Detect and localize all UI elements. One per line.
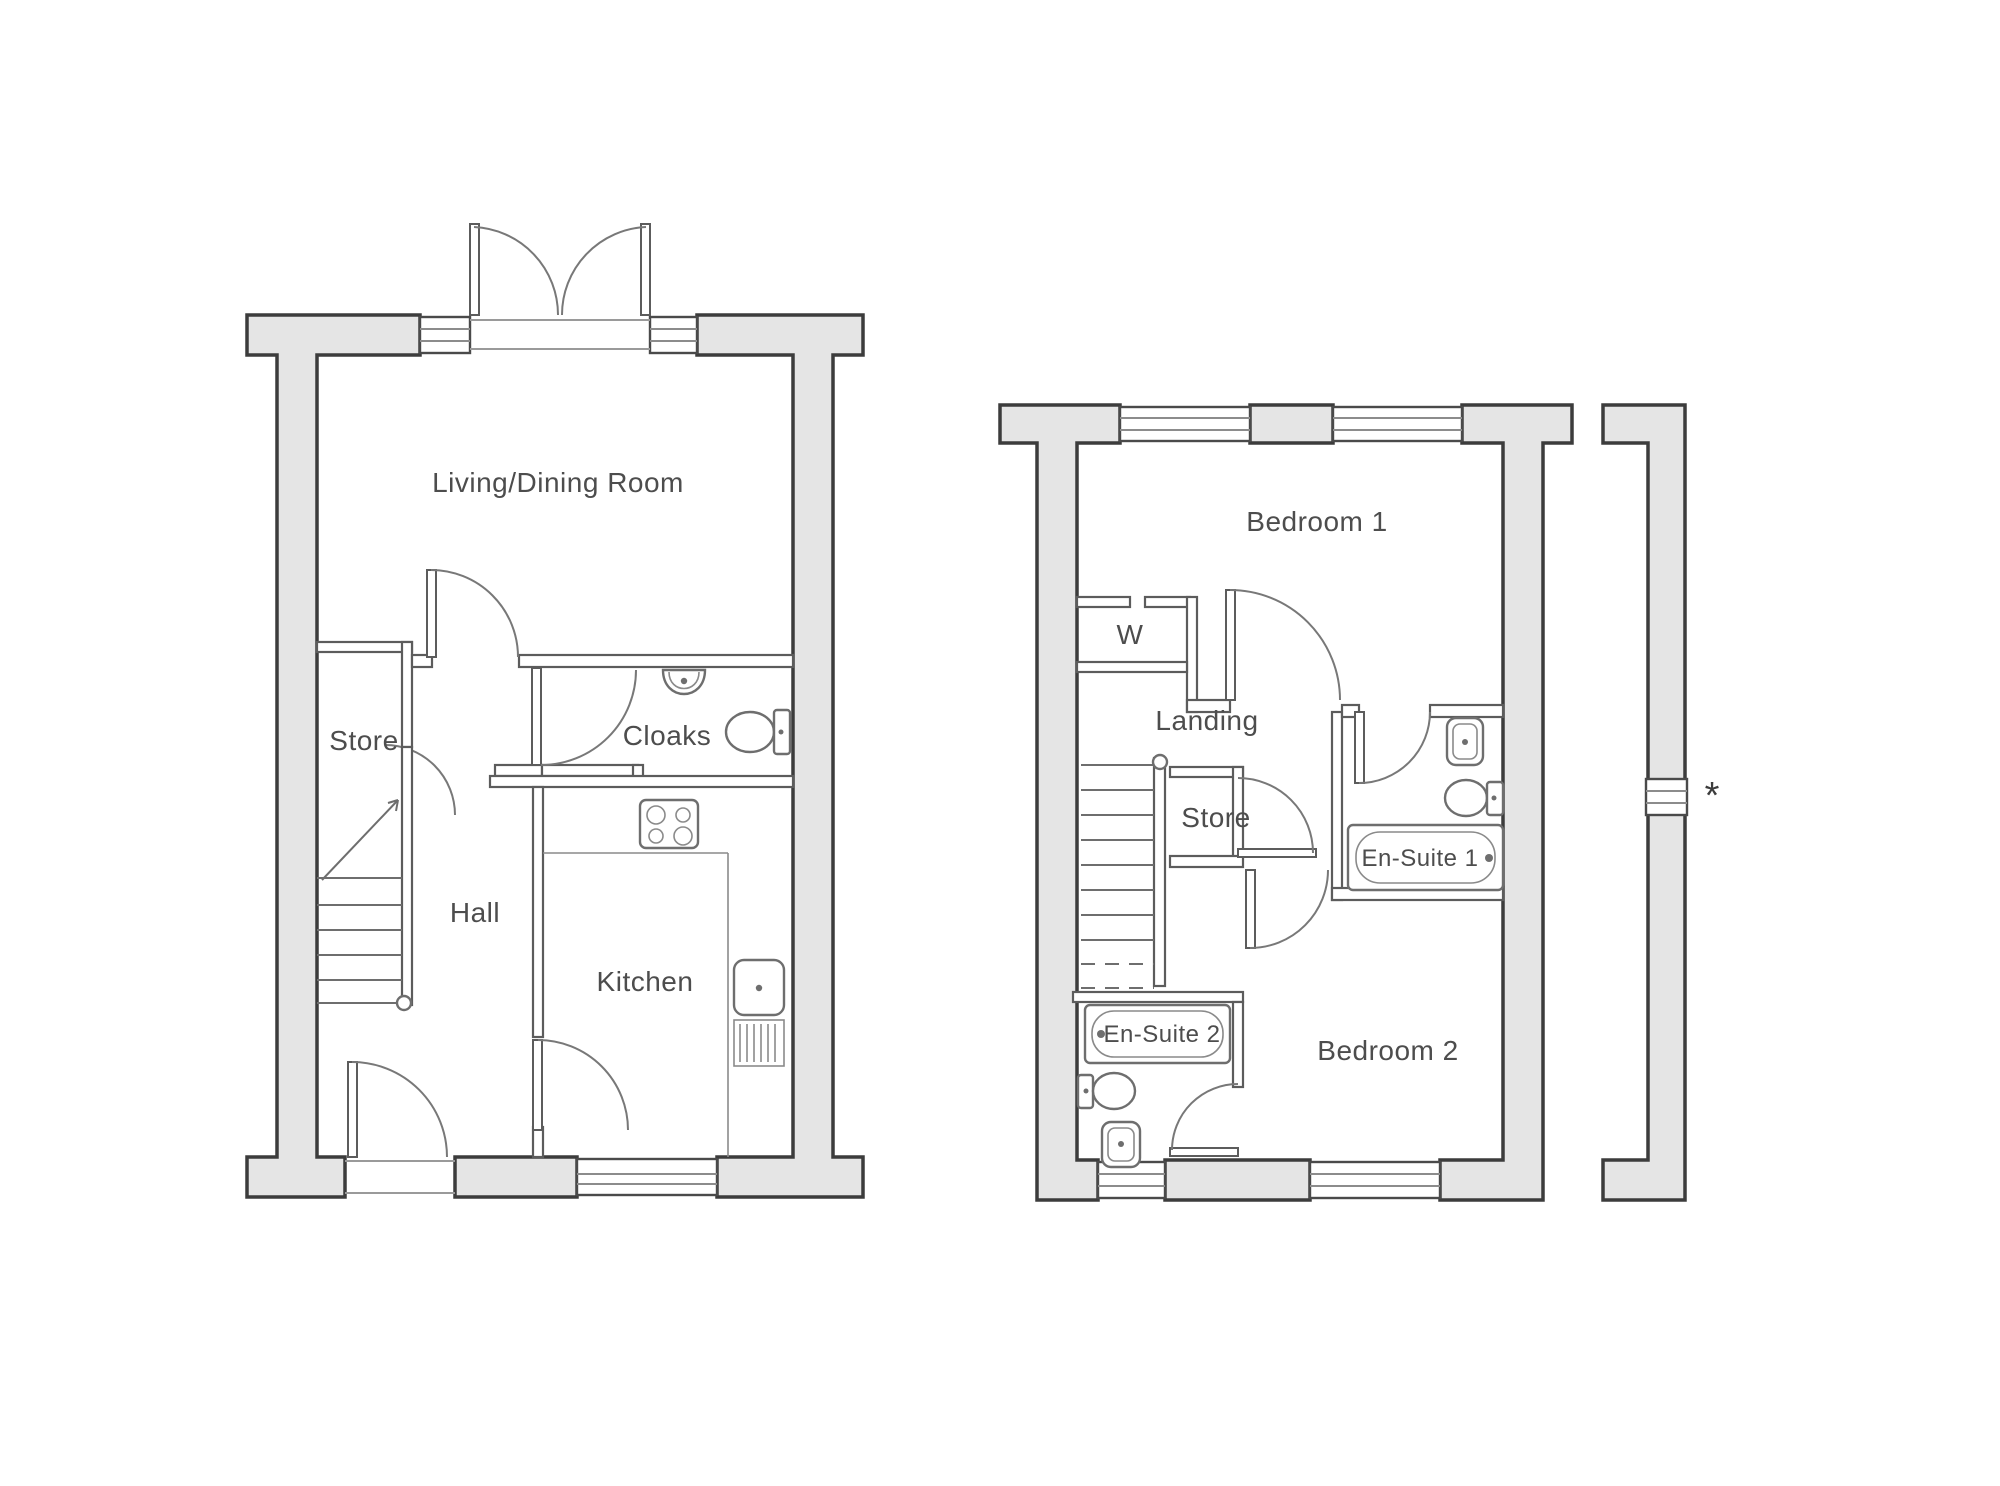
ensuite1-basin-icon — [1447, 718, 1483, 765]
ensuite2-wc-icon — [1078, 1073, 1135, 1109]
ensuite2-bath-icon: En-Suite 2 — [1085, 1005, 1230, 1063]
ground-bottom-wall-segment — [455, 1157, 577, 1197]
kitchen-door-stub — [533, 1127, 543, 1157]
cloaks-bottom-wall — [542, 765, 638, 776]
ensuite1-wc-icon — [1445, 780, 1503, 816]
ensuite1-top-wall-right — [1430, 705, 1503, 717]
ground-staircase — [317, 747, 412, 1010]
living-room-door — [427, 570, 518, 657]
store-side-wall — [402, 642, 412, 747]
label-en-suite-2: En-Suite 2 — [1103, 1021, 1220, 1048]
ensuite1-door — [1355, 712, 1430, 783]
bedroom1-door — [1226, 590, 1340, 700]
label-wardrobe: W — [1117, 619, 1144, 650]
label-bedroom-2: Bedroom 2 — [1317, 1035, 1458, 1066]
first-floor-plan: En-Suite 1 En-Suite 2 * — [1000, 405, 1720, 1200]
store-top-wall — [317, 642, 412, 652]
bedroom2-door — [1246, 870, 1328, 948]
party-wall-window — [1646, 779, 1687, 815]
label-kitchen: Kitchen — [597, 966, 694, 997]
first-top-wall-pier — [1250, 405, 1333, 443]
kitchen-counter — [543, 853, 728, 1157]
ensuite2-basin-icon — [1102, 1122, 1140, 1167]
label-first-store: Store — [1181, 802, 1250, 833]
kitchen-left-wall — [533, 787, 543, 1037]
ground-floor-plan: Living/Dining Room Store Cloaks Hall Kit… — [247, 224, 863, 1197]
first-rear-window-right — [1310, 1162, 1440, 1198]
living-room-wall-right — [519, 655, 793, 667]
cloaks-basin-icon — [663, 670, 705, 694]
ground-front-window-left — [420, 317, 470, 353]
ensuite1-left-wall — [1332, 712, 1342, 900]
ground-left-outer-wall — [247, 315, 420, 1197]
label-living-dining-room: Living/Dining Room — [432, 467, 684, 498]
cloaks-door — [532, 668, 636, 765]
party-wall: * — [1603, 405, 1720, 1200]
french-doors — [470, 224, 650, 349]
label-en-suite-1: En-Suite 1 — [1361, 845, 1478, 872]
floorplan-drawing: Living/Dining Room Store Cloaks Hall Kit… — [0, 0, 2000, 1486]
label-cloaks: Cloaks — [623, 720, 712, 751]
ensuite1-bath-icon: En-Suite 1 — [1348, 825, 1503, 890]
front-door — [345, 1062, 455, 1193]
first-staircase — [1081, 755, 1167, 988]
first-bottom-wall-segment — [1165, 1160, 1310, 1200]
label-bedroom-1: Bedroom 1 — [1246, 506, 1387, 537]
ensuite2-right-wall — [1233, 1002, 1243, 1087]
ensuite2-door — [1170, 1084, 1238, 1156]
first-front-window-right — [1333, 407, 1462, 441]
ensuite2-top-wall — [1073, 992, 1243, 1002]
ground-rear-window — [577, 1159, 717, 1195]
first-front-window-left — [1120, 407, 1250, 441]
cloaks-bottom-stub — [495, 765, 542, 776]
floorplan-page: Living/Dining Room Store Cloaks Hall Kit… — [0, 0, 2000, 1486]
kitchen-door — [533, 1040, 628, 1130]
label-ground-store: Store — [329, 725, 398, 756]
ground-right-outer-wall — [697, 315, 863, 1197]
sink-icon — [734, 960, 784, 1066]
wardrobe-closet — [1077, 597, 1197, 712]
hob-icon — [640, 800, 698, 848]
stair-direction-arrow — [322, 800, 398, 880]
label-landing: Landing — [1155, 705, 1258, 736]
ground-front-window-right — [650, 317, 697, 353]
kitchen-top-wall — [490, 776, 793, 787]
label-hall: Hall — [450, 897, 500, 928]
cloaks-wc-icon — [726, 710, 790, 754]
asterisk-marker: * — [1705, 775, 1720, 817]
